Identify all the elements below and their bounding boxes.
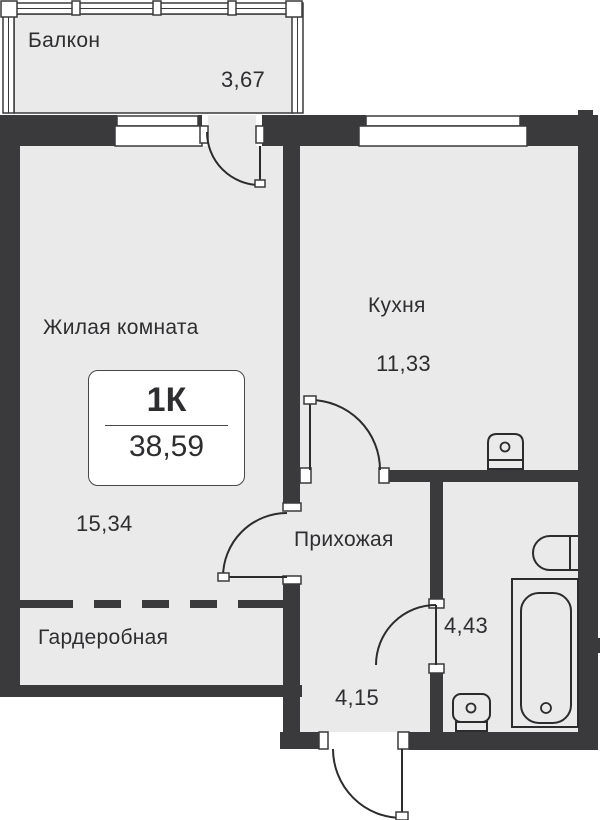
unit-total-area: 38,59 — [89, 431, 244, 463]
wall-top-mid — [262, 115, 302, 146]
wall-left — [0, 115, 20, 697]
bathroom-area: 4,43 — [444, 613, 488, 639]
railing-post-right — [286, 1, 302, 17]
wall-living-kitchen — [283, 146, 300, 504]
wall-wardrobe-bottom — [0, 685, 302, 697]
card-divider — [105, 425, 228, 426]
wall-bottom-right — [409, 732, 598, 750]
unit-info-card: 1К 38,59 — [88, 370, 245, 486]
wall-right — [578, 115, 598, 750]
wall-right-nub — [594, 638, 600, 653]
kitchen-area: 11,33 — [376, 351, 431, 377]
washbasin-icon — [533, 536, 578, 570]
unit-type: 1К — [89, 382, 244, 419]
wall-top-kitchen-left — [302, 115, 359, 146]
living-room-label: Жилая комната — [43, 316, 199, 340]
wall-hallway-bathroom-upper — [430, 482, 443, 600]
kitchen-window — [359, 116, 527, 146]
floor-plan: Балкон 3,67 Жилая комната 15,34 Кухня 11… — [0, 0, 600, 820]
wall-bottom-left — [280, 732, 319, 749]
entrance-door — [333, 749, 402, 818]
bathtub-icon — [512, 579, 578, 727]
hallway-label: Прихожая — [294, 528, 394, 552]
kitchen-label: Кухня — [368, 294, 426, 318]
kitchen-sink-icon — [488, 434, 523, 469]
wall-kitchen-hallway — [389, 470, 598, 482]
hallway-area: 4,15 — [335, 685, 379, 711]
wardrobe-label: Гардеробная — [38, 626, 168, 650]
wall-hallway-bathroom-lower — [430, 673, 443, 733]
kitchen-floor — [300, 146, 578, 470]
balcony-area: 3,67 — [221, 67, 265, 93]
railing-post-left — [1, 1, 17, 17]
balcony-label: Балкон — [28, 29, 100, 53]
living-room-window — [115, 116, 202, 146]
toilet-icon — [453, 694, 490, 731]
living-room-area: 15,34 — [76, 511, 133, 537]
